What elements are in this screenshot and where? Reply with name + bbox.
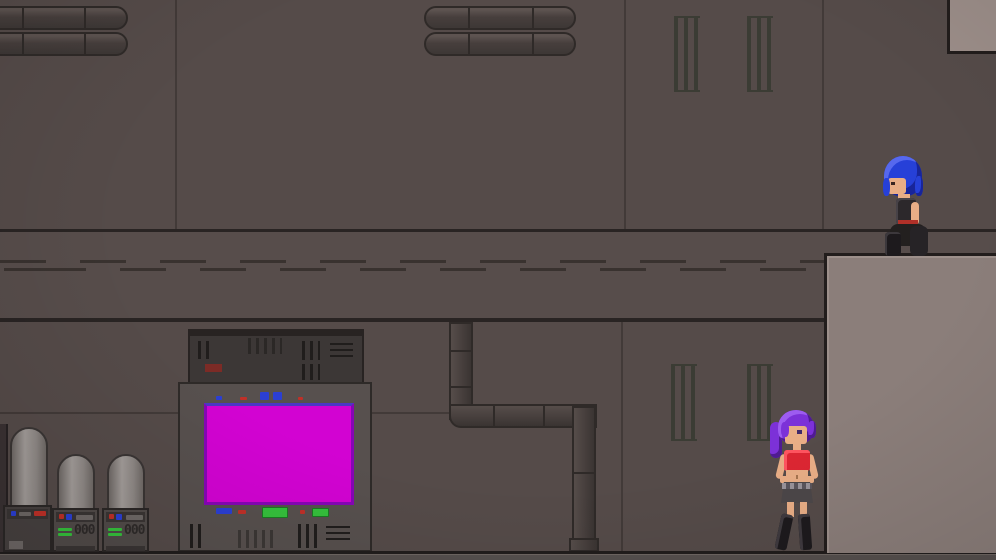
character-purple-girl[interactable]: [768, 410, 826, 550]
studded-belt: [782, 483, 812, 489]
raised-platform: [824, 253, 996, 553]
counter-value: 000: [124, 523, 144, 538]
pipe-joint: [451, 386, 471, 388]
indicator-blue: [11, 511, 16, 516]
warning-label: [205, 364, 222, 372]
console-foot: [56, 546, 95, 551]
pipe-joint: [84, 33, 86, 55]
duct-pipe: [424, 6, 576, 30]
pipe-joint: [543, 406, 545, 426]
duct-pipe: [424, 32, 576, 56]
machine-console: 000: [52, 508, 99, 552]
indicator-green: [262, 507, 288, 518]
indicator-strip: [106, 512, 145, 522]
status-led-red: [298, 397, 303, 400]
slat-vents: [248, 338, 282, 354]
wall-seam: [175, 0, 177, 230]
small-label: [9, 541, 23, 549]
wall-seam: [822, 0, 824, 230]
indicator-red: [59, 514, 64, 519]
vent-grate: [674, 16, 700, 92]
slat-vents: [302, 341, 320, 360]
red-crop-top: [784, 450, 810, 471]
indicator-red: [300, 510, 305, 514]
slat-vents: [190, 524, 203, 548]
hair-bang: [781, 422, 789, 437]
navel: [796, 475, 798, 479]
pipe-joint: [532, 33, 534, 55]
pipe-joint: [574, 472, 594, 474]
status-led-blue: [216, 396, 222, 400]
status-led-blue: [273, 392, 282, 400]
status-led-blue: [260, 392, 269, 400]
pipe-joint: [22, 33, 24, 55]
pipe-joint: [84, 7, 86, 29]
pipe-joint: [451, 350, 471, 352]
vent-grate: [747, 16, 773, 92]
gauge-bar-green: [58, 533, 72, 536]
pipe-joint: [22, 7, 24, 29]
counter-display: 000: [74, 523, 98, 539]
horizontal-vents: [330, 343, 353, 358]
pipe-end-cap: [569, 538, 599, 552]
gauge-bar-green: [108, 533, 122, 536]
slat-vents: [302, 364, 320, 380]
hair-lock: [883, 178, 890, 196]
ceiling-block: [947, 0, 996, 54]
readout-slot: [126, 515, 143, 520]
hand: [806, 476, 814, 483]
game-viewport: 000 000: [0, 0, 996, 560]
counter-display: 000: [124, 523, 148, 539]
vent-grate: [671, 364, 697, 441]
gauge-bar-green: [108, 528, 122, 531]
indicator-red: [109, 514, 114, 519]
console-foot: [106, 546, 145, 551]
monitor-cabinet: [178, 382, 372, 552]
indicator-blue: [66, 514, 72, 520]
machine-console: [3, 505, 52, 552]
duct-pipe: [0, 6, 128, 30]
slat-vents: [298, 524, 318, 548]
hair-lock: [915, 176, 923, 196]
readout-slot: [76, 515, 93, 520]
pipe-joint: [532, 7, 534, 29]
hair-lock: [808, 421, 816, 438]
pipe-joint: [468, 7, 470, 29]
machine-console: 000: [102, 508, 149, 552]
status-led-red: [240, 397, 247, 400]
tank-dome: [107, 454, 145, 511]
indicator-green: [312, 508, 329, 517]
boot: [798, 514, 812, 551]
pipe-joint: [493, 406, 495, 426]
boot: [910, 226, 928, 256]
face: [888, 178, 906, 194]
boot: [885, 232, 901, 256]
eye: [891, 182, 895, 185]
monitor-screen[interactable]: [204, 403, 354, 505]
slat-vents: [198, 341, 211, 359]
slat-vents: [238, 530, 274, 548]
boot: [774, 513, 793, 551]
character-blue-girl[interactable]: [882, 154, 930, 256]
indicator-blue: [116, 514, 122, 520]
hand: [780, 476, 788, 483]
readout-slot: [19, 512, 31, 516]
duct-pipe: [0, 32, 128, 56]
indicator-red: [238, 510, 246, 514]
gauge-bar-green: [58, 528, 72, 531]
wall-pipe-vertical: [572, 406, 596, 552]
indicator-strip: [7, 509, 48, 519]
indicator-blue: [216, 508, 232, 514]
tank-cylinder-tall: [10, 427, 48, 508]
indicator-strip: [56, 512, 95, 522]
tank-dome: [57, 454, 95, 511]
wall-seam: [621, 322, 623, 552]
counter-value: 000: [74, 523, 94, 538]
eye: [797, 430, 802, 434]
indicator-red: [34, 511, 46, 516]
pipe-joint: [468, 33, 470, 55]
horizontal-vents: [326, 526, 350, 542]
wall-seam: [624, 0, 626, 230]
console-top-unit: [188, 329, 364, 384]
